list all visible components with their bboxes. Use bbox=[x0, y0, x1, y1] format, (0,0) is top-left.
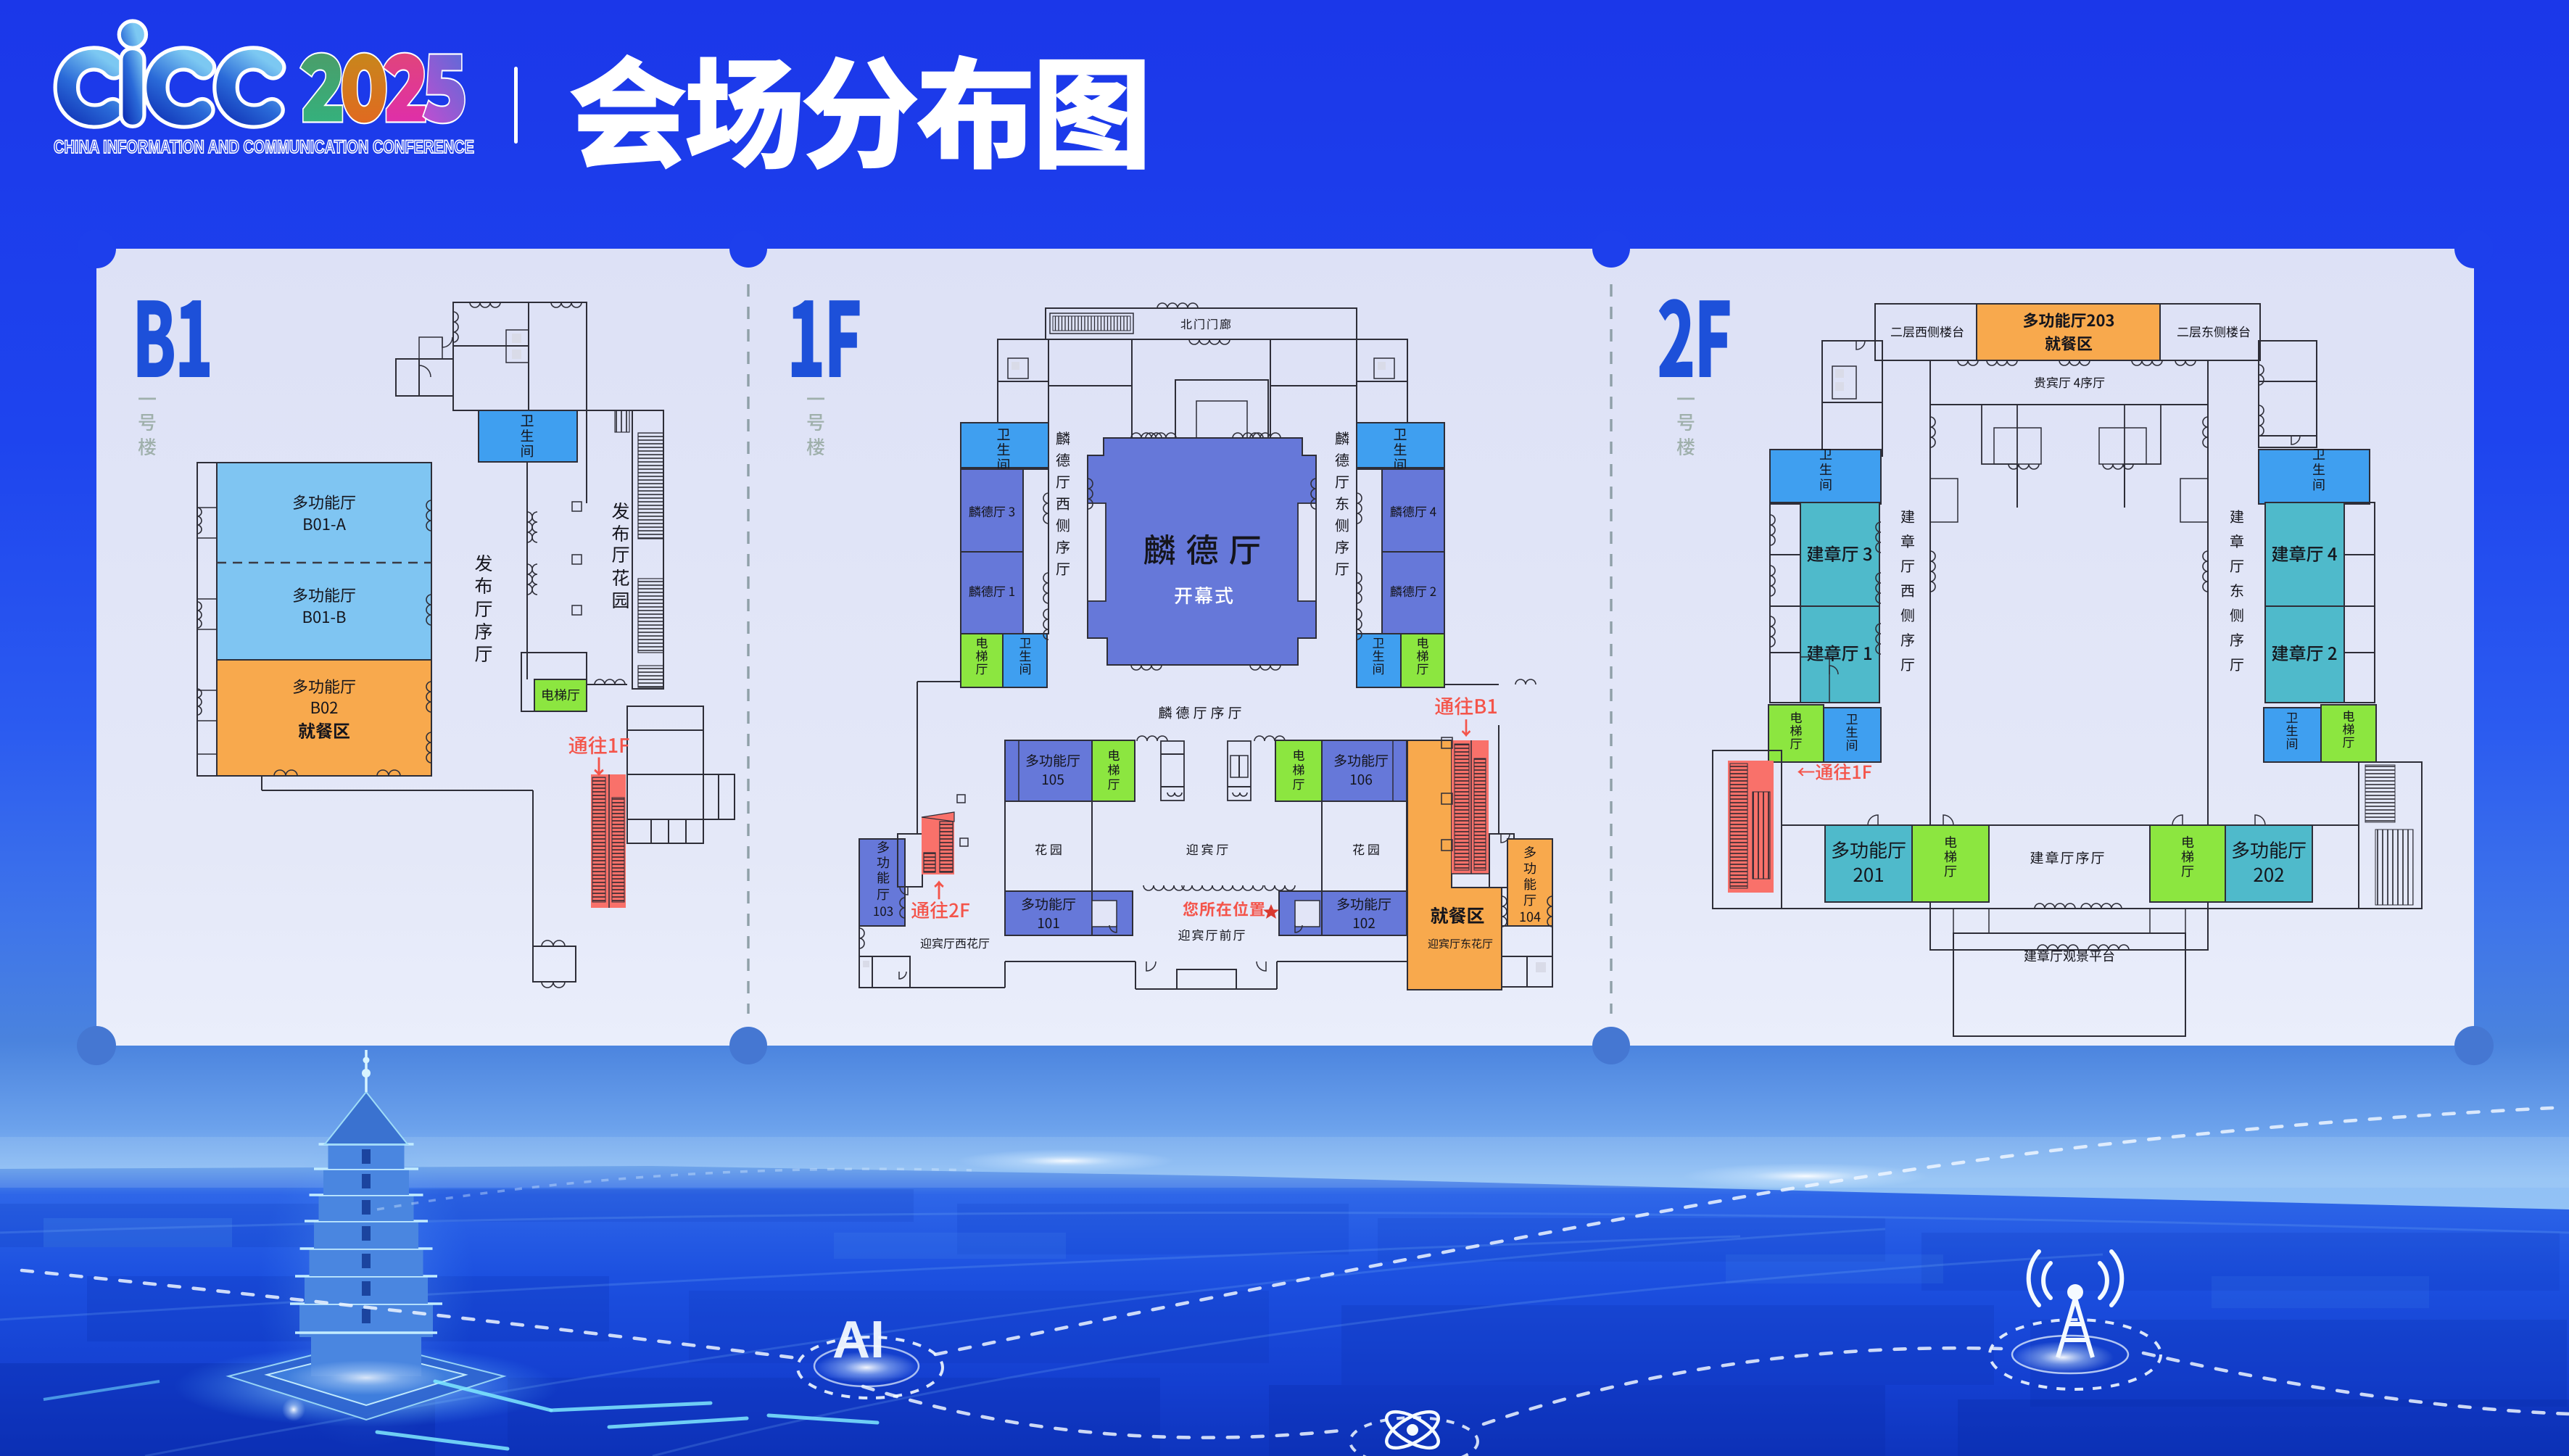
svg-text:CHINA INFORMATION AND COMMUNIC: CHINA INFORMATION AND COMMUNICATION CONF… bbox=[54, 137, 474, 157]
svg-text:AI: AI bbox=[832, 1311, 885, 1369]
